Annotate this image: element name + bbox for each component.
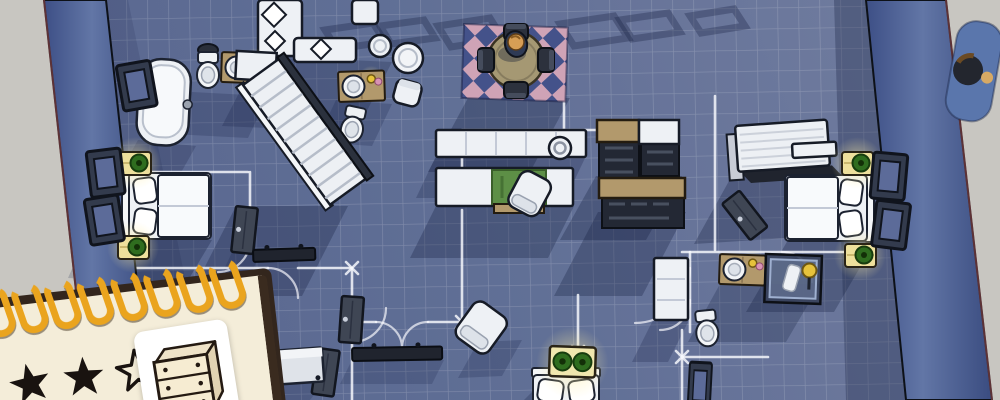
shower[interactable] — [764, 254, 822, 304]
round-side-table[interactable] — [393, 43, 423, 73]
floor-window-right-1[interactable] — [870, 152, 908, 201]
floor-window-right-2[interactable] — [871, 200, 910, 250]
standing-window[interactable] — [688, 362, 712, 400]
round-stool[interactable] — [369, 35, 391, 57]
game-viewport — [0, 0, 1000, 400]
objective-notepad — [0, 275, 287, 400]
door-1[interactable] — [231, 206, 258, 254]
kitchen-counter-upper[interactable] — [597, 120, 679, 178]
white-cabinet[interactable] — [654, 258, 688, 320]
objective-sticker — [133, 318, 243, 400]
kitchen-counter-lower[interactable] — [599, 178, 685, 228]
floor-window-left-1[interactable] — [86, 148, 125, 198]
floor-window-left-2[interactable] — [84, 195, 125, 246]
study-desk[interactable] — [436, 168, 573, 213]
star-filled — [1, 355, 59, 400]
sink-vanity-3[interactable] — [719, 249, 766, 286]
leaning-window[interactable] — [116, 60, 157, 111]
door-2[interactable] — [339, 296, 364, 343]
sofa-side-table[interactable] — [352, 0, 378, 24]
dresser-icon — [142, 328, 233, 400]
notepad-page — [0, 275, 287, 400]
wall-shelf[interactable] — [792, 142, 837, 158]
toilet-1[interactable] — [197, 44, 219, 88]
sink-vanity-2[interactable] — [338, 65, 385, 102]
white-chair[interactable] — [392, 78, 423, 108]
star-filled — [58, 352, 109, 400]
